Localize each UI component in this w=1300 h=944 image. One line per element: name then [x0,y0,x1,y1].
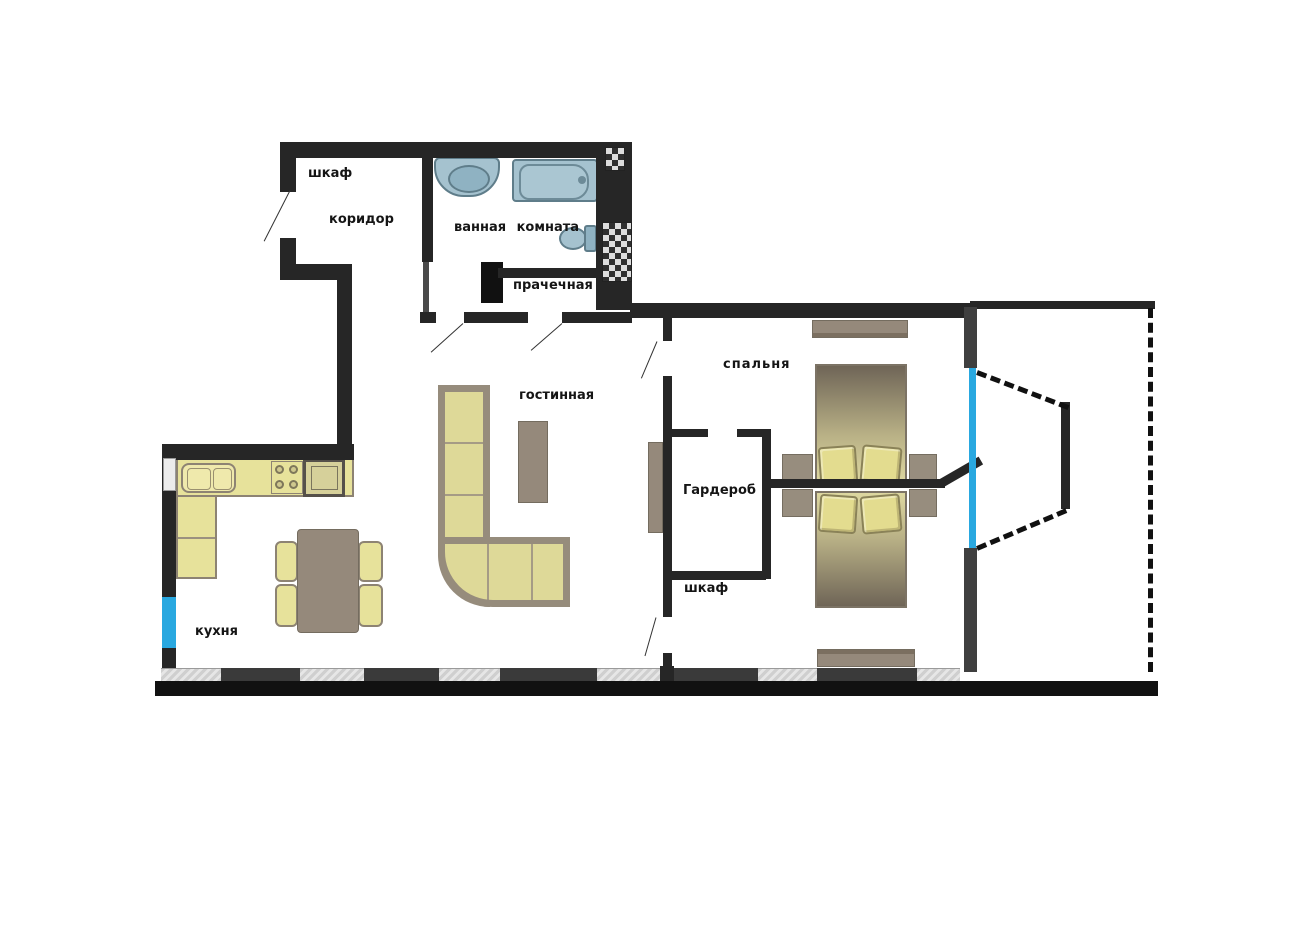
wall-wardrobe-top [671,429,708,437]
wall-hall-bottom [464,312,528,323]
wall-bottom-segment [221,668,300,681]
room-label-bedroom: спальня [723,357,791,372]
wall-bed-divider-diagonal [939,457,983,488]
wall-divider-vertical [663,315,672,341]
bathtub-drain [578,176,586,184]
kitchen-appliance [303,459,345,497]
door-swing-entry [264,190,291,241]
wall-laundry-top [498,268,598,278]
dining-chair [275,584,298,627]
wall-kitchen-top [162,444,354,460]
wall-top [280,142,632,158]
room-label-bathroom: ванная комната [454,220,579,235]
wall-bedroom-right [964,548,977,672]
dining-chair [358,541,383,582]
kitchen-appliance-inner [311,466,338,490]
wall-hall-bottom [420,312,436,323]
door-swing-bedroom [641,341,658,378]
door-swing-bathroom [431,323,464,353]
wall-bottom-segment [500,668,597,681]
bedroom-window [969,368,976,548]
room-label-laundry: прачечная [513,278,593,293]
wall-wardrobe-right [762,429,771,579]
door-swing-bedroom-lower [644,617,656,656]
stove-burner [275,465,284,474]
kitchen-window [162,597,176,648]
wall-divider-vertical [663,376,672,617]
door-swing-laundry [531,323,563,351]
balcony-dashed-top [976,370,1069,410]
wall-bottom-stub [660,666,674,682]
wall-corridor-vertical [337,264,352,460]
stove-burner [289,465,298,474]
wall-bottom-segment [364,668,439,681]
dining-chair [275,541,298,582]
ventilation-shaft-hatch [602,222,632,282]
wall-top-right-extension [970,301,1155,309]
room-label-kitchen: кухня [195,624,238,639]
balcony-dashed-right-edge [1148,308,1153,672]
kitchen-sink-basin-left [187,468,211,490]
balcony-dashed-bottom [976,508,1067,551]
ventilation-shaft-hatch [605,147,625,171]
kitchen-counter-left [176,495,217,579]
wall-hall-bottom [562,312,632,323]
room-label-hall-closet: шкаф [308,166,352,181]
dresser-top [812,320,908,338]
wall-wardrobe-bottom [671,571,766,580]
nightstand [782,489,813,517]
tv-cabinet [648,442,663,533]
room-label-corridor: коридор [329,212,394,227]
dining-table [297,529,359,633]
wall-entry-upper [280,142,296,192]
wall-bottom-thick-line [155,681,1158,696]
room-label-wardrobe: Гардероб [683,483,756,498]
floor-plan: шкаф коридор ванная комната прачечная го… [0,0,1300,944]
room-label-living-room: гостинная [519,388,594,403]
kitchen-sink-basin-right [213,468,232,490]
room-label-bedroom-closet: шкаф [684,581,728,596]
nightstand [909,489,937,517]
stove-burner [289,480,298,489]
bed-pillow [818,494,859,535]
dining-chair [358,584,383,627]
stove [271,461,303,494]
dresser-bottom [817,649,915,667]
left-wall-niche [163,458,176,491]
kitchen-sink [181,463,236,493]
wall-bedroom-top [630,303,973,318]
bed-pillow [859,493,902,534]
stove-burner [275,480,284,489]
balcony-rail-bar [1061,402,1070,509]
coffee-table [518,421,548,503]
wall-bottom-segment [817,668,917,681]
wall-bottom-segment [674,668,758,681]
wall-bedroom-right [964,307,977,368]
bathroom-sink-basin [448,165,490,193]
wall-bed-divider [767,479,945,488]
wall-corridor-bathroom [422,155,433,262]
wall-corridor-bathroom-thin [423,262,429,317]
